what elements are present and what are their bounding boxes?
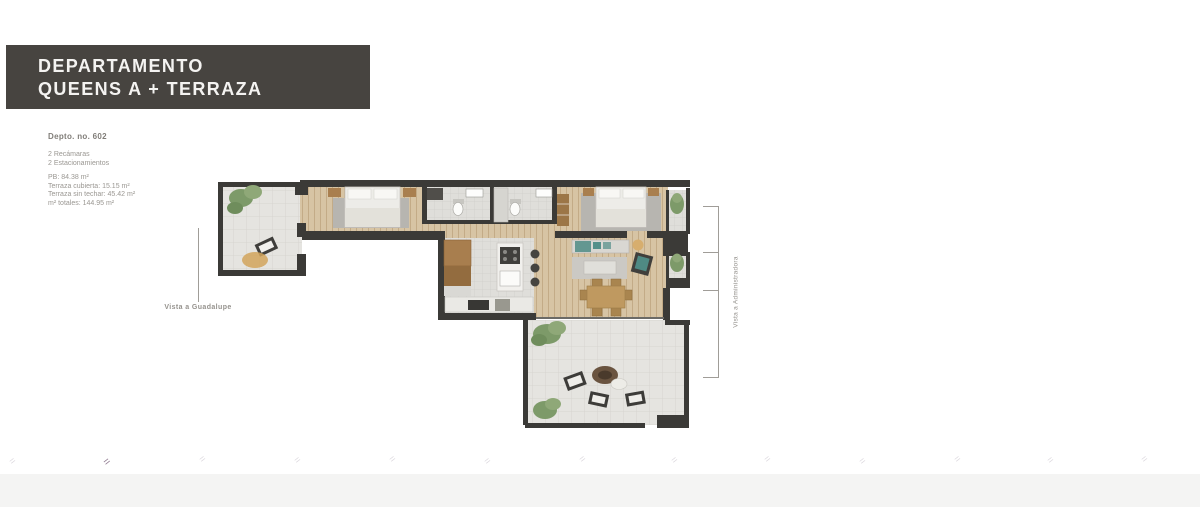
area-total: m² totales: 144.95 m² bbox=[48, 200, 135, 209]
feature-bedrooms: 2 Recámaras bbox=[48, 151, 135, 160]
area-covered-terrace: Terraza cubierta: 15.15 m² bbox=[48, 183, 135, 192]
unit-number: Depto. no. 602 bbox=[48, 132, 135, 141]
floor-plan bbox=[195, 178, 700, 433]
bottom-strip bbox=[0, 474, 1200, 507]
feature-parking: 2 Estacionamientos bbox=[48, 160, 135, 169]
coffee-table-icon bbox=[572, 257, 627, 279]
floorplan-page: DEPARTAMENTO QUEENS A + TERRAZA Depto. n… bbox=[0, 0, 1200, 507]
unit-details: Depto. no. 602 2 Recámaras 2 Estacionami… bbox=[48, 132, 135, 208]
side-table-icon bbox=[633, 240, 644, 251]
title-line-2: QUEENS A + TERRAZA bbox=[38, 78, 370, 101]
left-leader-line bbox=[198, 228, 199, 302]
sofa-icon bbox=[572, 240, 629, 253]
area-list: PB: 84.38 m² Terraza cubierta: 15.15 m² … bbox=[48, 174, 135, 208]
title-banner: DEPARTAMENTO QUEENS A + TERRAZA bbox=[6, 45, 370, 109]
view-label-right: Vista a Administradora bbox=[733, 256, 740, 328]
area-pb: PB: 84.38 m² bbox=[48, 174, 135, 183]
round-rug-icon bbox=[242, 252, 268, 268]
area-open-terrace: Terraza sin techar: 45.42 m² bbox=[48, 191, 135, 200]
view-label-left: Vista a Guadalupe bbox=[146, 304, 250, 311]
title-line-1: DEPARTAMENTO bbox=[38, 55, 370, 78]
right-bracket bbox=[703, 206, 719, 378]
